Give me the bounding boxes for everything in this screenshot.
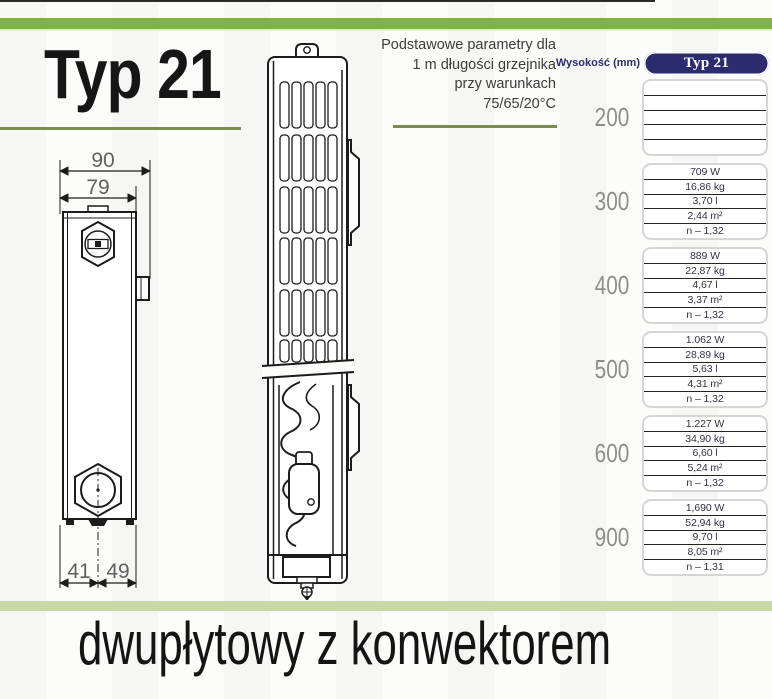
spec-value: 1,690 W (644, 501, 766, 515)
height-label-300: 300 (591, 186, 633, 216)
spec-block-400: 889 W 22,87 kg 4,67 l 3,37 m² n – 1,32 (642, 247, 768, 324)
spec-block-500: 1.062 W 28,89 kg 5,63 l 4,31 m² n – 1,32 (642, 331, 768, 408)
dim-label-41: 41 (67, 560, 90, 583)
spec-value: 34,90 kg (644, 431, 766, 446)
height-axis-label: Wysokość (mm) (520, 57, 640, 69)
spec-value (644, 139, 766, 154)
spec-value: 3,37 m² (644, 292, 766, 307)
spec-block-300: 709 W 16,86 kg 3,70 l 2,44 m² n – 1,32 (642, 163, 768, 240)
height-label-200: 200 (591, 102, 633, 132)
height-label-500: 500 (591, 354, 633, 384)
radiator-spec-page: Typ 21 Podstawowe parametry dla 1 m dług… (0, 0, 772, 699)
spec-value: 28,89 kg (644, 347, 766, 362)
height-label-600: 600 (591, 438, 633, 468)
top-accent-bar (0, 18, 772, 31)
spec-value (644, 124, 766, 139)
spec-value: n – 1,32 (644, 307, 766, 322)
note-underline (393, 125, 557, 128)
spec-value: 709 W (644, 165, 766, 179)
spec-value: n – 1,31 (644, 559, 766, 574)
dim-label-49: 49 (106, 560, 129, 583)
spec-value: n – 1,32 (644, 223, 766, 238)
spec-value: 5,63 l (644, 362, 766, 377)
height-label-400: 400 (591, 270, 633, 300)
section-view-drawing (262, 44, 359, 600)
spec-value: 889 W (644, 249, 766, 263)
height-label-900: 900 (591, 522, 633, 552)
spec-value: 16,86 kg (644, 179, 766, 194)
spec-value: 4,67 l (644, 278, 766, 293)
spec-value: n – 1,32 (644, 475, 766, 490)
spec-value (644, 81, 766, 95)
spec-value (644, 110, 766, 125)
spec-value: 52,94 kg (644, 515, 766, 530)
spec-block-200 (642, 79, 768, 156)
column-header-typ21: Typ 21 (644, 52, 769, 75)
footer-caption: dwupłytowy z konwektorem (78, 612, 611, 675)
spec-value: 2,44 m² (644, 208, 766, 223)
radiator-technical-drawing: 90 79 41 49 (20, 35, 380, 600)
top-rule (0, 0, 655, 2)
spec-value: 4,31 m² (644, 376, 766, 391)
spec-block-600: 1.227 W 34,90 kg 6,60 l 5,24 m² n – 1,32 (642, 415, 768, 492)
front-view-drawing (60, 160, 150, 590)
spec-value: 1.062 W (644, 333, 766, 347)
spec-value: 8,05 m² (644, 544, 766, 559)
spec-value (644, 95, 766, 110)
spec-value: 9,70 l (644, 530, 766, 545)
spec-value: 1.227 W (644, 417, 766, 431)
spec-block-900: 1,690 W 52,94 kg 9,70 l 8,05 m² n – 1,31 (642, 499, 768, 576)
dim-label-79: 79 (86, 176, 109, 199)
spec-value: 6,60 l (644, 446, 766, 461)
dim-label-90: 90 (91, 149, 114, 172)
spec-value: 5,24 m² (644, 460, 766, 475)
spec-value: 22,87 kg (644, 263, 766, 278)
spec-value: n – 1,32 (644, 391, 766, 406)
spec-value: 3,70 l (644, 194, 766, 209)
